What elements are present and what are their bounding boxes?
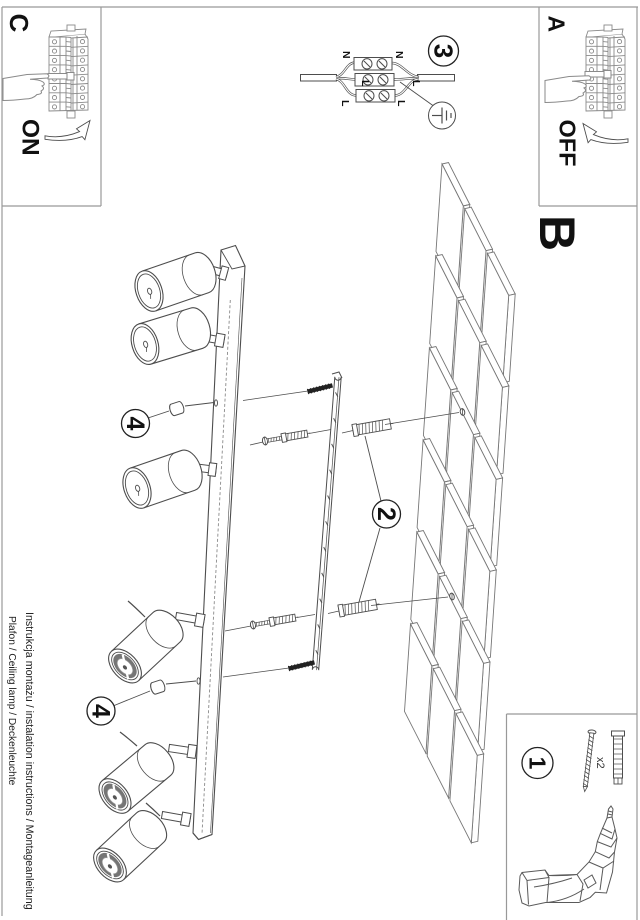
svg-text:N: N (393, 51, 405, 59)
svg-text:1: 1 (525, 757, 551, 770)
svg-text:OFF: OFF (555, 120, 581, 167)
svg-text:L: L (359, 80, 371, 87)
svg-text:L: L (339, 100, 351, 107)
svg-text:Plafon / Ceiling lamp / Decken: Plafon / Ceiling lamp / Deckenleuchte (6, 616, 17, 786)
svg-text:3: 3 (429, 44, 459, 58)
svg-text:A: A (544, 16, 570, 33)
svg-text:B: B (529, 215, 585, 251)
svg-text:x2: x2 (594, 757, 606, 769)
svg-text:4: 4 (121, 417, 149, 431)
svg-text:C: C (4, 14, 34, 33)
svg-text:2: 2 (372, 507, 400, 521)
svg-text:N: N (340, 51, 352, 59)
svg-text:L: L (410, 80, 422, 87)
svg-text:4: 4 (87, 704, 115, 718)
svg-text:L: L (395, 100, 407, 107)
svg-text:Instrukcja montażu / instalati: Instrukcja montażu / instalation instruc… (23, 612, 35, 910)
svg-text:ON: ON (16, 119, 43, 156)
